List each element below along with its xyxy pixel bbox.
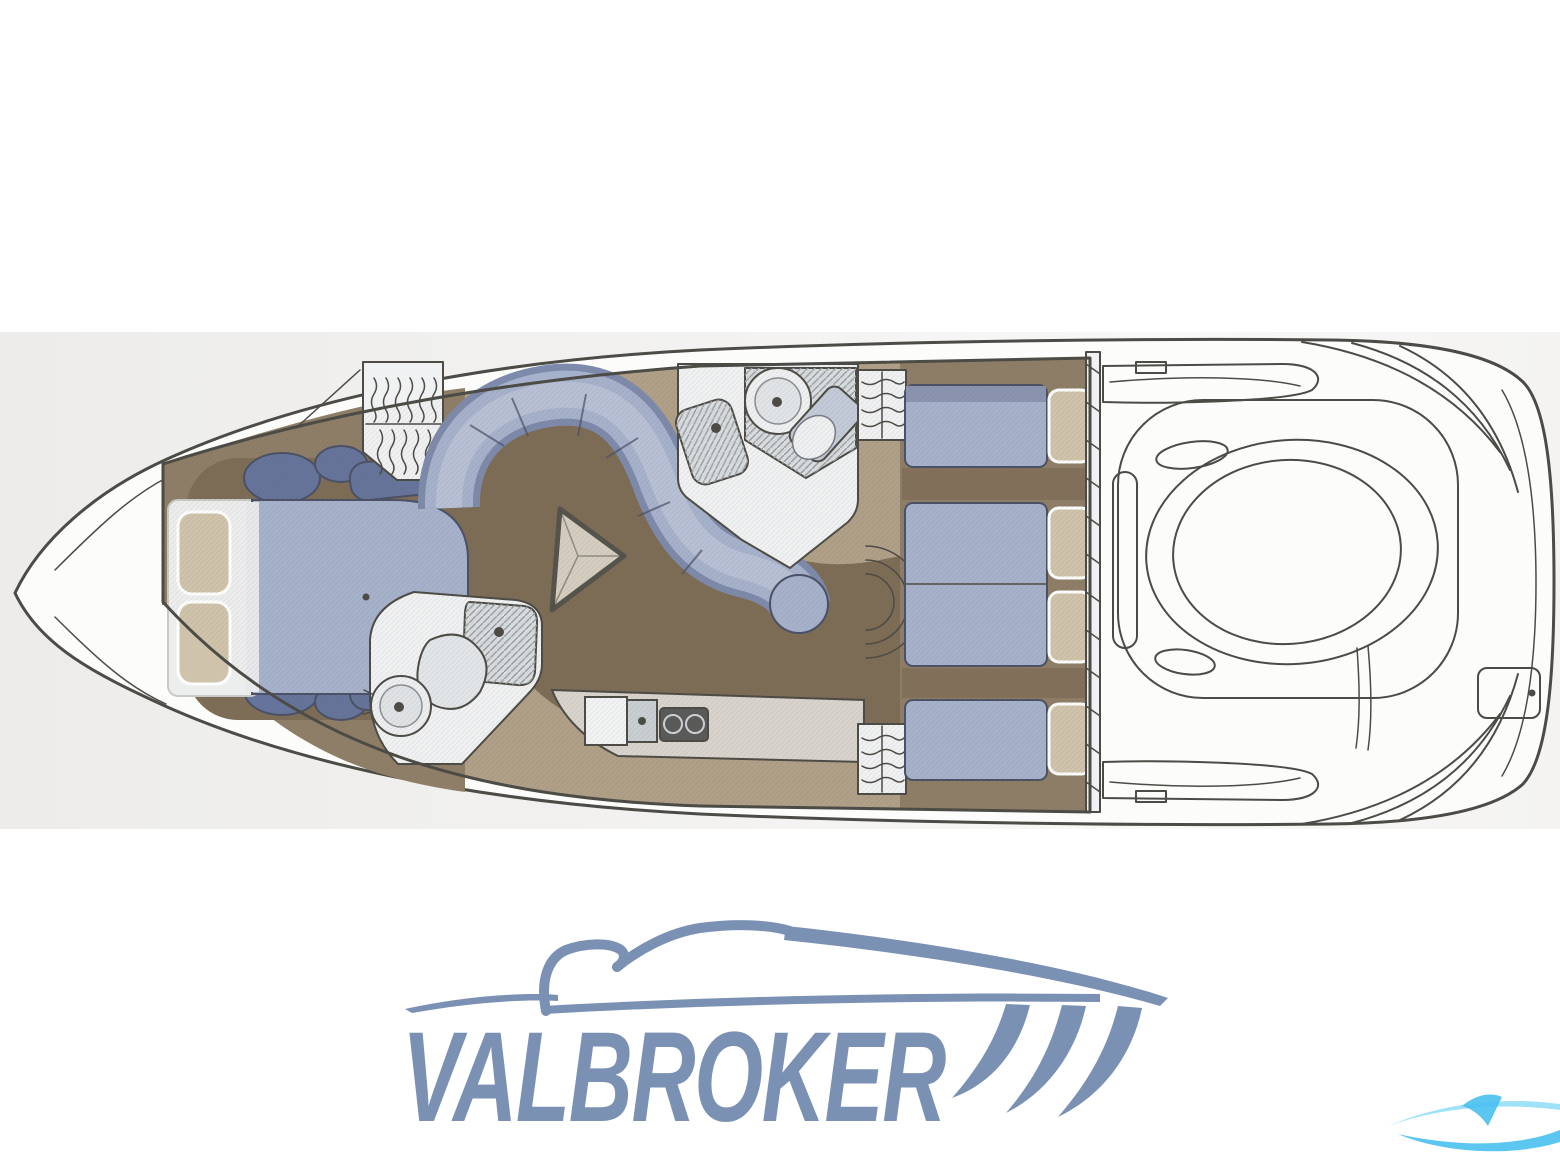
transom-latch (1529, 690, 1536, 697)
page: VALBROKER (0, 0, 1560, 1170)
logo-wordmark: VALBROKER (402, 1006, 946, 1149)
floorplan-svg: VALBROKER (0, 0, 1560, 1170)
